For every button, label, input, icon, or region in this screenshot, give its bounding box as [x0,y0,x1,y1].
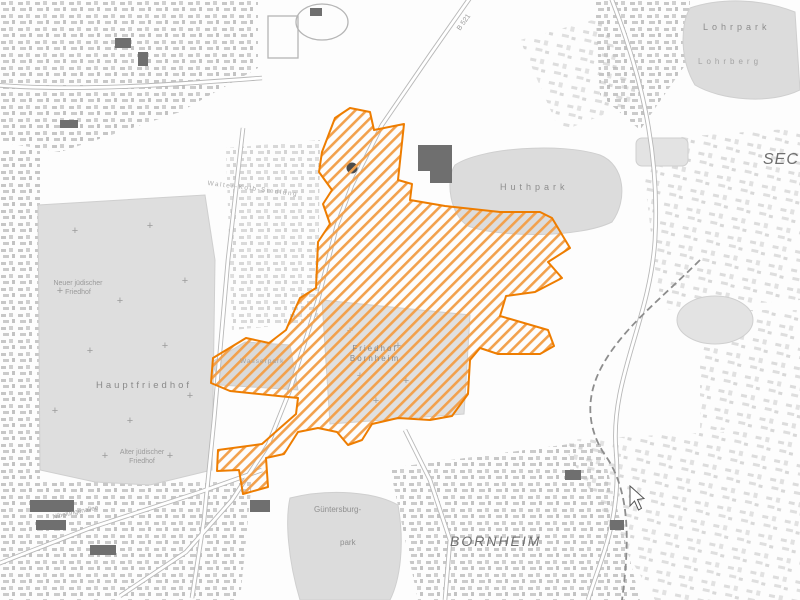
svg-text:+: + [187,390,193,402]
small-park-topright [636,138,688,166]
svg-text:+: + [72,225,78,237]
hauptfriedhof-area [38,195,215,485]
svg-text:+: + [102,450,108,462]
svg-text:+: + [57,285,63,297]
svg-text:+: + [87,345,93,357]
svg-text:+: + [182,275,188,287]
svg-text:+: + [117,295,123,307]
guentersburgpark-area [288,492,402,600]
svg-text:+: + [147,220,153,232]
svg-text:+: + [162,340,168,352]
svg-text:+: + [52,405,58,417]
map-viewport: ++ +++ ++ +++ ++ ++ +++ Lohrpark Lohrber… [0,0,800,600]
svg-text:+: + [167,450,173,462]
small-park-right [677,296,753,344]
svg-text:+: + [127,415,133,427]
lohrpark-area [683,1,800,99]
map-canvas[interactable]: ++ +++ ++ +++ ++ ++ +++ [0,0,800,600]
